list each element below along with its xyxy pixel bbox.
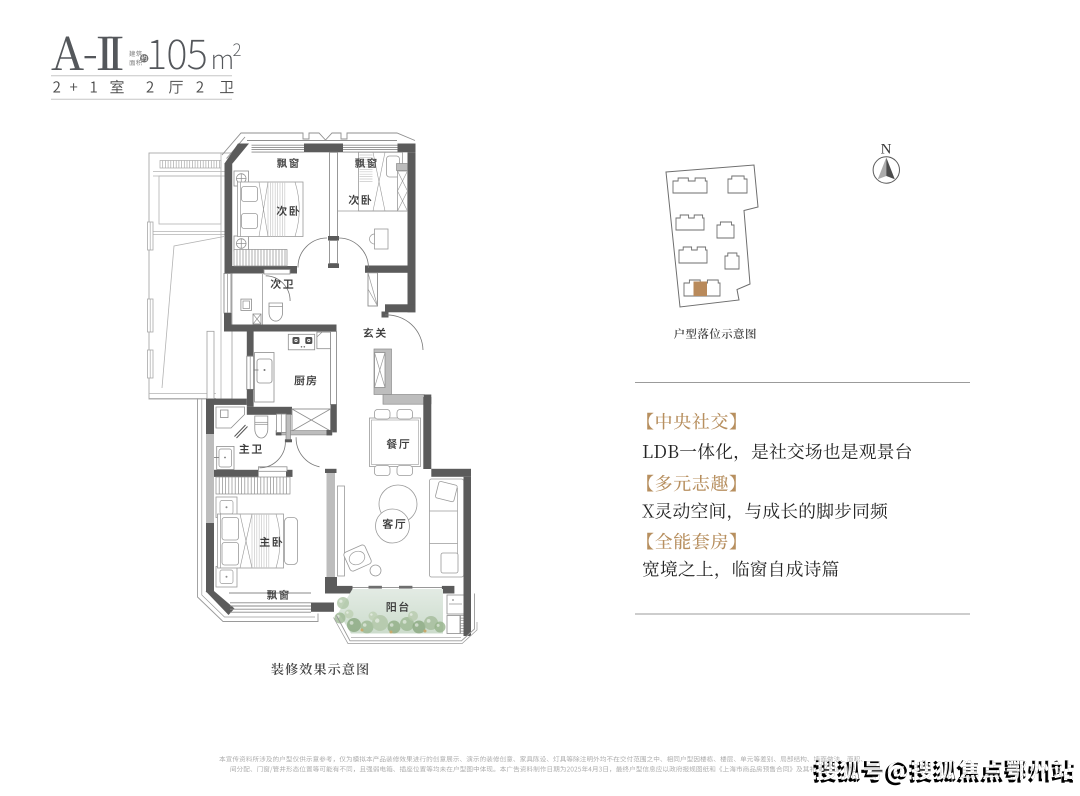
svg-text:N: N [881,142,892,158]
